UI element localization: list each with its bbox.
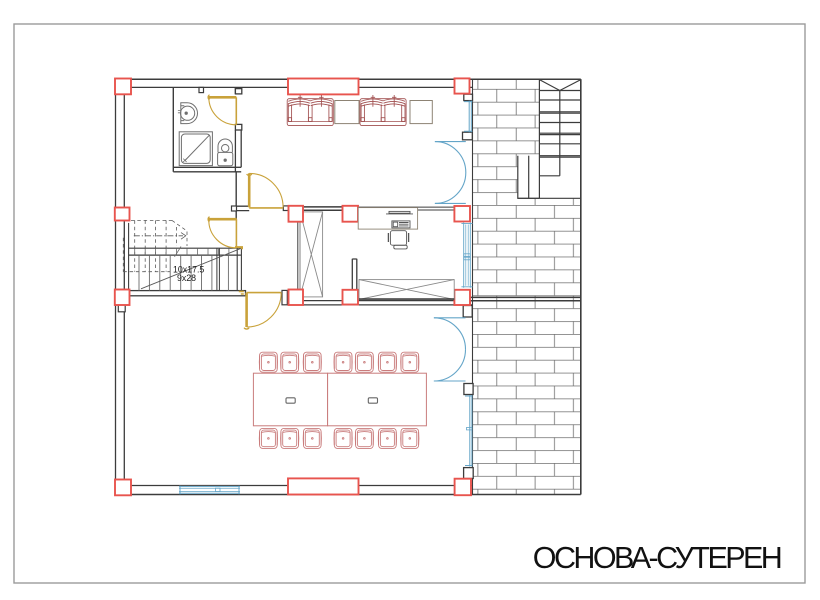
svg-text:9x28: 9x28 (177, 273, 196, 283)
svg-text:ОСНОВА-СУТЕРЕН: ОСНОВА-СУТЕРЕН (533, 541, 783, 575)
